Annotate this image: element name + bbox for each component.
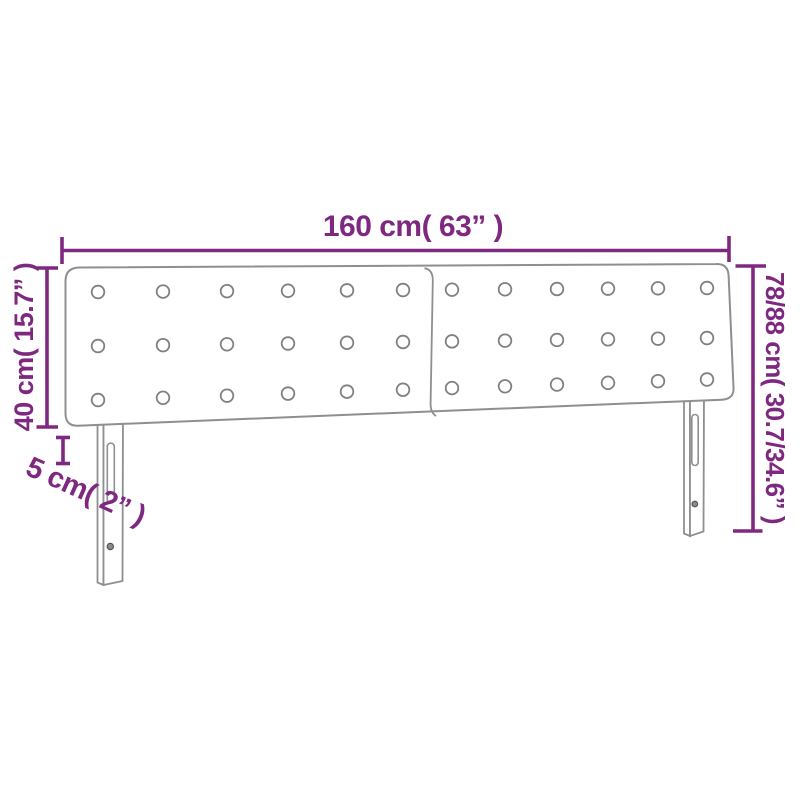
- total-height-dimension-label: 78/88 cm( 30.7/34.6” ): [760, 272, 790, 524]
- panel-height-dimension-label: 40 cm( 15.7” ): [9, 263, 39, 432]
- tufting-button: [602, 282, 615, 295]
- tufting-button: [499, 283, 512, 296]
- tufting-button: [221, 285, 234, 298]
- tufting-button: [551, 378, 564, 391]
- tufting-button: [397, 383, 410, 396]
- tufting-button: [652, 375, 665, 388]
- depth-dimension: 5 cm( 2” ): [21, 438, 150, 533]
- right-leg-slot: [692, 415, 698, 466]
- tufting-button: [157, 285, 170, 298]
- tufting-button: [602, 333, 615, 346]
- total-height-dimension: 78/88 cm( 30.7/34.6” ): [733, 266, 790, 531]
- tufting-button: [221, 338, 234, 351]
- headboard-panel: [66, 264, 734, 426]
- tufting-button: [282, 284, 295, 297]
- tufting-button: [397, 284, 410, 297]
- tufting-button: [157, 339, 170, 352]
- headboard-dimension-diagram: 160 cm( 63” ) 40 cm( 15.7” ) 78/88 cm( 3…: [0, 0, 800, 800]
- tufting-button: [701, 373, 714, 386]
- width-dimension: 160 cm( 63” ): [62, 210, 729, 264]
- panel-height-dimension: 40 cm( 15.7” ): [9, 263, 58, 432]
- tufting-button: [602, 377, 615, 390]
- right-leg: [684, 392, 704, 536]
- tufting-button: [701, 332, 714, 345]
- tufting-button: [446, 283, 459, 296]
- tufting-button: [341, 385, 354, 398]
- width-dimension-label: 160 cm( 63” ): [323, 210, 503, 243]
- tufting-button: [92, 286, 105, 299]
- tufting-button: [551, 334, 564, 347]
- tufting-button: [652, 282, 665, 295]
- tufting-button: [282, 387, 295, 400]
- tufting-button: [157, 392, 170, 405]
- tufting-button: [701, 282, 714, 295]
- tufting-button: [92, 394, 105, 407]
- left-leg-screw-hole: [107, 543, 113, 549]
- tufting-button: [341, 336, 354, 349]
- tufting-button: [282, 337, 295, 350]
- tufting-button: [446, 335, 459, 348]
- tufting-button: [652, 332, 665, 345]
- tufting-button: [221, 389, 234, 402]
- diagram-canvas: 160 cm( 63” ) 40 cm( 15.7” ) 78/88 cm( 3…: [0, 0, 800, 800]
- tufting-button: [341, 284, 354, 297]
- right-leg-screw-hole: [692, 501, 698, 507]
- tufting-button: [92, 340, 105, 353]
- tufting-button: [551, 283, 564, 296]
- tufting-button: [499, 334, 512, 347]
- tufting-button: [397, 336, 410, 349]
- tufting-button: [446, 382, 459, 395]
- tufting-button: [499, 380, 512, 393]
- depth-dimension-label: 5 cm( 2” ): [21, 451, 150, 532]
